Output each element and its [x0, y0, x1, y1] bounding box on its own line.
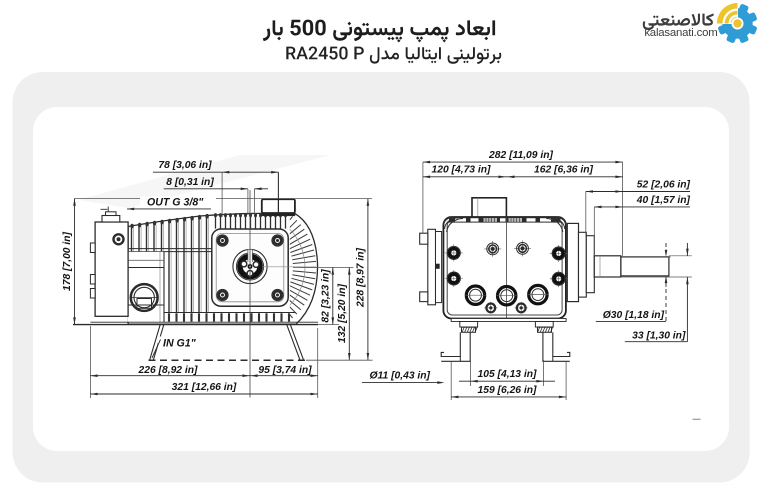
svg-text:kalasanati.com: kalasanati.com — [644, 27, 717, 39]
svg-text:78 [3,06 in]: 78 [3,06 in] — [158, 160, 212, 171]
svg-text:52 [2,06 in]: 52 [2,06 in] — [637, 179, 691, 190]
svg-text:Ø30 [1,18 in]: Ø30 [1,18 in] — [603, 310, 665, 321]
svg-text:Ø11 [0,43 in]: Ø11 [0,43 in] — [370, 371, 431, 382]
svg-text:8 [0,31 in]: 8 [0,31 in] — [166, 177, 214, 188]
svg-text:OUT G 3/8": OUT G 3/8" — [147, 197, 204, 209]
svg-text:40 [1,57 in]: 40 [1,57 in] — [636, 195, 691, 206]
svg-text:226 [8,92 in]: 226 [8,92 in] — [138, 365, 199, 376]
svg-text:82 [3,23 in]: 82 [3,23 in] — [320, 269, 331, 323]
svg-text:159 [6,26 in]: 159 [6,26 in] — [478, 385, 538, 396]
svg-text:228 [8,97 in]: 228 [8,97 in] — [356, 247, 367, 308]
svg-text:282 [11,09 in]: 282 [11,09 in] — [488, 150, 553, 161]
svg-text:33 [1,30 in]: 33 [1,30 in] — [632, 330, 686, 341]
svg-text:105 [4,13 in]: 105 [4,13 in] — [478, 369, 538, 380]
svg-text:IN G1": IN G1" — [163, 338, 197, 350]
svg-text:178 [7,00 in]: 178 [7,00 in] — [62, 231, 73, 291]
svg-text:321 [12,66 in]: 321 [12,66 in] — [172, 382, 237, 393]
svg-text:132 [5,20 in]: 132 [5,20 in] — [337, 283, 348, 343]
svg-text:120 [4,73 in]: 120 [4,73 in] — [432, 165, 492, 176]
svg-text:162 [6,36 in]: 162 [6,36 in] — [534, 165, 594, 176]
svg-text:95 [3,74 in]: 95 [3,74 in] — [258, 365, 312, 376]
